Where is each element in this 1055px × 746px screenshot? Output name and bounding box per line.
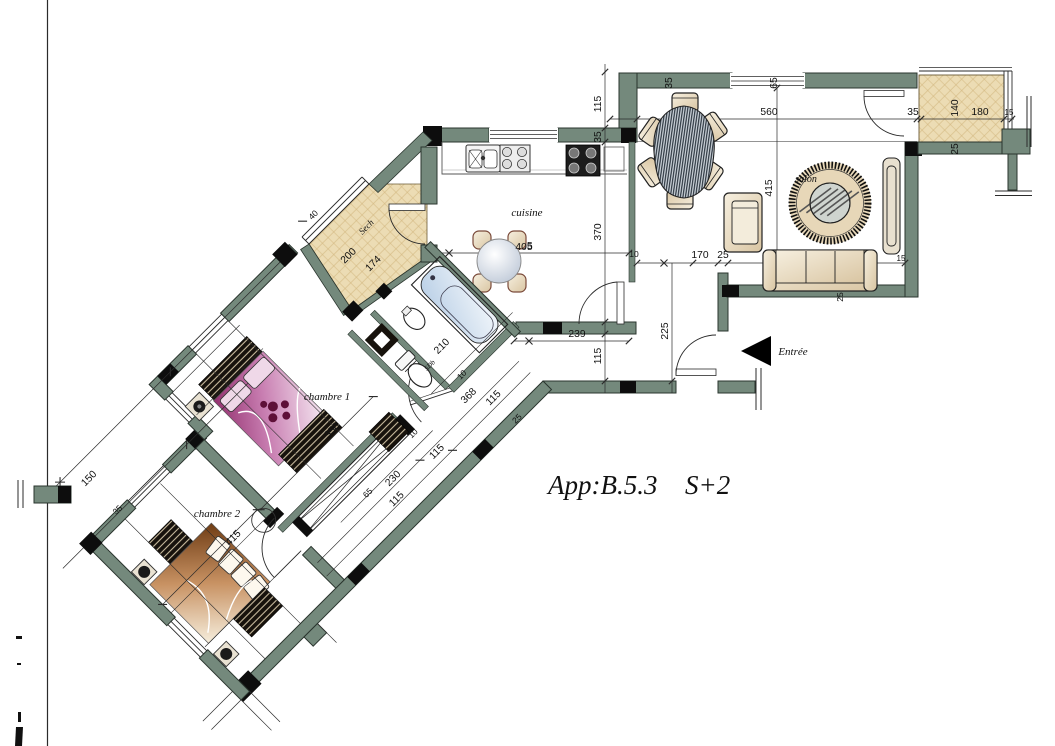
svg-text:115: 115 — [593, 348, 604, 365]
svg-text:180: 180 — [971, 107, 988, 118]
svg-text:App:B.5.3: App:B.5.3 — [546, 470, 657, 500]
svg-text:S+2: S+2 — [685, 470, 730, 500]
svg-text:Entrée: Entrée — [777, 346, 807, 358]
svg-text:15: 15 — [1005, 108, 1014, 117]
svg-text:35: 35 — [907, 107, 919, 118]
svg-text:415: 415 — [764, 179, 775, 196]
svg-text:cuisine: cuisine — [511, 207, 542, 219]
svg-text:25: 25 — [950, 143, 961, 155]
svg-text:170: 170 — [691, 250, 708, 261]
svg-text:salon: salon — [795, 174, 817, 185]
svg-text:405: 405 — [515, 242, 532, 253]
svg-text:15: 15 — [897, 254, 906, 263]
svg-text:25: 25 — [835, 292, 845, 302]
svg-text:115: 115 — [593, 96, 604, 113]
svg-text:chambre 1: chambre 1 — [304, 391, 350, 403]
svg-text:140: 140 — [950, 99, 961, 116]
svg-text:35: 35 — [664, 77, 675, 89]
svg-text:chambre 2: chambre 2 — [194, 508, 241, 520]
svg-text:35: 35 — [593, 131, 604, 143]
svg-text:560: 560 — [760, 107, 777, 118]
svg-text:225: 225 — [660, 322, 671, 339]
svg-text:239: 239 — [568, 329, 585, 340]
svg-text:370: 370 — [593, 223, 604, 240]
